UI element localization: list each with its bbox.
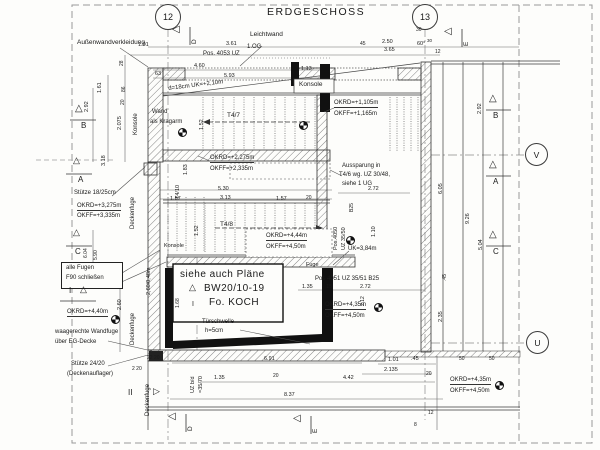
label-tuerschwelle: Türschwelle [202, 319, 234, 325]
label-wandfuge-1: waagerechte Wandfuge [55, 329, 118, 335]
section-triangle-icon: △ [189, 283, 196, 292]
label-1og: 1.OG [247, 44, 261, 50]
dim-label: 12 [428, 411, 434, 416]
dim-label: 20 [426, 372, 432, 377]
dim-label: 1.35 [214, 376, 225, 382]
dim-label: 2.075 [118, 116, 124, 130]
level-okrd-1105: OKRD=+1,105m [334, 100, 378, 108]
label-pos-4053: Pos. 4053 UZ [203, 51, 240, 57]
dim-label: 6.91 [264, 357, 275, 363]
axis-letter-a-left: A [78, 176, 83, 184]
section-triangle-icon: △ [80, 285, 87, 294]
dim-label: 3.18 [102, 155, 108, 166]
benchmark-icon [374, 303, 383, 312]
dim-label: 2.92 [478, 103, 484, 114]
dim-label: 2 20 [132, 367, 142, 372]
dim-label: 6.05 [439, 183, 445, 194]
level-okff-2335: OKFF=+2,335m [210, 166, 253, 172]
axis-letter-a-right: A [493, 178, 498, 186]
label-deckenfuge-1: Deckenfuge [130, 197, 136, 229]
label-konsole-top: Konsole [299, 82, 323, 89]
dim-label: 60° [417, 42, 425, 48]
dim-label: 2.60 [118, 299, 124, 310]
label-alle-fugen: alle Fugen [66, 265, 94, 271]
section-arrow-icon: ◁ [293, 414, 301, 424]
level-okff-450: OKFF=+4,50m [266, 244, 306, 250]
section-arrow-icon: ◁ [168, 412, 176, 422]
benchmark-icon [178, 128, 187, 137]
plan-linework [0, 0, 600, 450]
dim-label: 5.30 [218, 187, 229, 193]
axis-triangle-icon: △ [489, 94, 497, 104]
benchmark-icon [495, 381, 504, 390]
dim-label: 4.60 [194, 64, 205, 70]
section-arrow-icon: ◁ [172, 25, 180, 35]
level-okff-450-right: OKFF=+4,50m [450, 388, 490, 394]
label-b25: B25 [350, 203, 355, 212]
level-okrd-444: OKRD=+4,44m [266, 233, 307, 241]
benchmark-icon [299, 121, 308, 130]
label-tuerschwelle-h: h=5cm [205, 328, 223, 334]
dim-label: 1.35 [302, 285, 313, 291]
dim-label: 28 [120, 60, 125, 66]
label-kragarm: als Kragarm [150, 119, 182, 125]
section-arrow-icon: ◁ [444, 27, 452, 37]
axis-letter-c-right: C [493, 248, 499, 256]
dim-label: 2.35 [439, 311, 445, 322]
label-aussenwandverkleidung: Außenwandverkleidung [77, 40, 145, 47]
label-wall-size: 2,60/0,48m [147, 267, 153, 295]
level-okrd-435-right: OKRD=+4,35m [450, 377, 491, 385]
dim-label: 1.83 [184, 164, 190, 175]
axis-letter-c-left: C [75, 248, 81, 256]
dim-label: 9.26 [466, 213, 472, 224]
dim-label: 12 [435, 50, 441, 55]
dim-label: 1.13 [301, 67, 312, 73]
section-letter-ii: II [128, 389, 132, 397]
note-bw-number: BW20/10-19 [204, 284, 265, 294]
level-okff-1165: OKFF=+1,165m [334, 111, 377, 117]
dim-label: 5.93 [224, 74, 235, 80]
axis-triangle-icon: △ [489, 160, 497, 170]
dim-label: 1.68 [176, 298, 181, 308]
dim-label: .45 [443, 274, 448, 281]
dim-label: 1.52 [200, 119, 206, 130]
dim-label: 3.13 [220, 196, 231, 202]
label-aussparung-1: Aussparung in [342, 163, 380, 169]
dim-label: 8.37 [284, 393, 295, 399]
label-pos-4050: Pos.4050 [334, 227, 340, 250]
dim-label: 2.50 [382, 40, 393, 46]
label-fuge: Fuge [306, 263, 319, 269]
label-leichtwand: Leichtwand [250, 32, 283, 39]
label-deckenfuge-2: Deckenfuge [130, 313, 136, 345]
grid-bubble-u: U [526, 331, 549, 354]
section-letter-e-bottom: E [313, 429, 320, 433]
label-uk-384: UK=3,84m [348, 246, 377, 252]
dim-label: 20 [306, 196, 312, 201]
axis-triangle-icon: △ [73, 228, 80, 237]
dim-label: 30 [427, 39, 432, 44]
label-wand: Wand [152, 109, 167, 115]
dim-label: 50 [489, 357, 495, 362]
section-triangle-icon: ▷ [153, 387, 160, 396]
level-okff-450: OKFF=+4,50m [325, 313, 365, 319]
section-letter-d-top: D [192, 39, 199, 44]
dim-label: 50 [459, 357, 465, 362]
label-uz-bd-2: =35/70 [199, 376, 205, 393]
axis-triangle-icon: △ [489, 230, 497, 240]
section-letter-i-mid: I [192, 301, 194, 308]
axis-triangle-icon: △ [75, 104, 83, 114]
stair-label-t48: T4/8 [220, 222, 233, 229]
label-wandfuge-2: über EG-Decke [55, 339, 96, 345]
page-title: ERDGESCHOSS [267, 7, 365, 18]
note-fo-koch: Fo. KOCH [209, 298, 259, 308]
label-stuetze-18: Stütze 18/25cm [74, 190, 116, 196]
floor-plan-sheet: ERDGESCHOSS 12 13 V U ◁ D ◁ E Außenwandv… [0, 0, 600, 450]
section-letter-e-top: E [464, 42, 471, 46]
dim-label: 20 [273, 374, 279, 379]
dim-label: 86 [122, 86, 127, 92]
dim-label: 63 [155, 72, 161, 78]
stair-label-t47: T4/7 [227, 113, 240, 120]
dim-label: .45 [411, 357, 419, 363]
level-okrd-3275: OKRD=+3,275m [77, 203, 121, 211]
label-aussparung-2: T4/6 wg. UZ 30/48, [339, 172, 390, 178]
axis-letter-b-right: B [493, 112, 498, 120]
axis-letter-b-left: B [81, 122, 86, 130]
label-konsole-mid: Konsole [164, 244, 184, 250]
dim-label: 2.72 [360, 285, 371, 291]
dim-label: 45 [360, 42, 366, 47]
benchmark-icon [346, 236, 355, 245]
dim-label: 2.12 [361, 296, 366, 306]
dim-label: .15 [325, 285, 332, 290]
dim-label: 1.01 [388, 358, 399, 364]
section-letter-i-left: I [69, 287, 71, 295]
dim-label: 4.42 [343, 376, 354, 382]
stair-label-t410: T4/10 [176, 185, 182, 199]
axis-triangle-icon: △ [73, 156, 80, 165]
dim-label: 5.04 [479, 239, 485, 250]
label-uz-bd-1: UZ b/d [191, 376, 197, 393]
dim-label: 1.01 [138, 43, 149, 49]
dim-label: 5.90 [94, 250, 99, 260]
dim-label: 8 [414, 423, 417, 428]
dim-label: 1.52 [195, 225, 201, 236]
dim-label: 30 [416, 28, 422, 33]
dim-label: 1.10 [372, 226, 378, 237]
benchmark-icon [111, 315, 120, 324]
dim-label: 6.04 [84, 248, 89, 258]
dim-label: 2.92 [85, 101, 91, 112]
label-deckenauflager: (Deckenauflager) [67, 371, 113, 377]
label-f90: F90 schließen [66, 275, 104, 281]
label-konsole-left: Konsole [133, 113, 139, 135]
level-okrd-440: OKRD=+4,40m [67, 309, 108, 317]
dim-label: 1.57 [276, 197, 287, 203]
dim-label: 20 [121, 99, 126, 105]
label-stuetze-24: Stütze 24/20 [71, 361, 105, 367]
label-pos-4051: Pos 4051 UZ 35/51 B25 [315, 276, 379, 282]
section-letter-d-bottom: D [188, 426, 195, 431]
level-okff-3335: OKFF=+3,335m [77, 213, 120, 219]
grid-bubble-v: V [525, 143, 548, 166]
stair-walklines [208, 122, 318, 228]
dim-label: 2.72 [368, 187, 379, 193]
label-deckenfuge-3: Deckenfuge [145, 384, 151, 416]
note-siehe-plaene: siehe auch Pläne [180, 270, 265, 280]
dim-label: 3.65 [384, 48, 395, 54]
level-okrd-2275: OKRD=+2,275m [210, 155, 254, 163]
dim-label: 1.61 [98, 82, 104, 93]
dim-label: 22 20 [147, 356, 160, 361]
dim-label: 3.61 [226, 42, 237, 48]
dim-label: 2.135 [384, 368, 398, 374]
